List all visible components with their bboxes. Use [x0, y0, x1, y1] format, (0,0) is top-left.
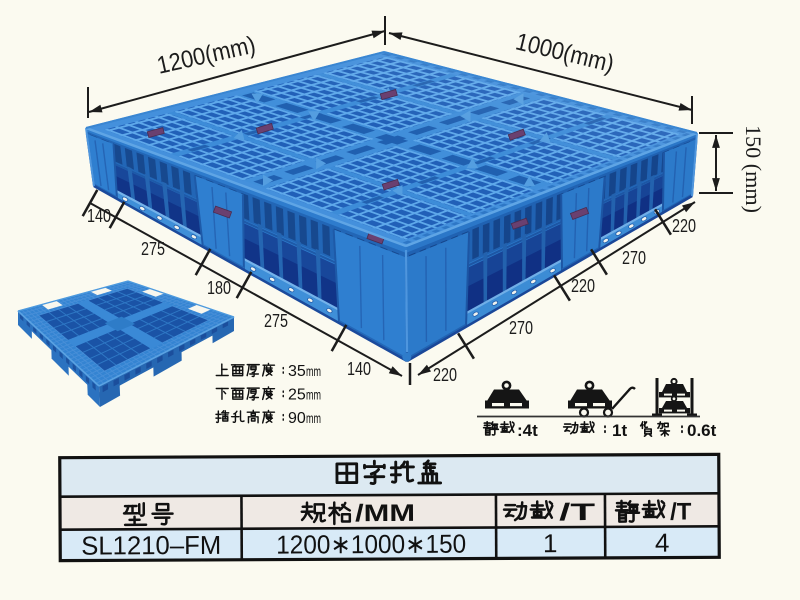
svg-text:220: 220: [433, 365, 457, 385]
svg-text:180: 180: [207, 278, 231, 298]
svg-text:220: 220: [672, 216, 696, 236]
svg-text:mm: mm: [306, 410, 321, 426]
svg-text:270: 270: [622, 248, 646, 268]
svg-text:1: 1: [543, 528, 558, 558]
svg-text::4t: :4t: [517, 421, 538, 440]
svg-text:275: 275: [264, 311, 288, 331]
svg-text:150 (mm): 150 (mm): [741, 125, 766, 213]
svg-text:140: 140: [347, 359, 371, 379]
svg-text:SL1210–FM: SL1210–FM: [81, 530, 221, 561]
svg-text:275: 275: [141, 239, 165, 259]
svg-text:140: 140: [87, 206, 111, 226]
svg-text:270: 270: [509, 318, 533, 338]
svg-text:35: 35: [288, 363, 306, 380]
svg-text:4: 4: [655, 528, 670, 558]
svg-text:220: 220: [571, 276, 595, 296]
svg-text:mm: mm: [306, 387, 321, 403]
svg-text:0.6t: 0.6t: [687, 421, 717, 440]
svg-text:/T: /T: [559, 499, 596, 526]
svg-text:mm: mm: [306, 363, 321, 379]
svg-text:90: 90: [288, 410, 306, 427]
svg-text:1200∗1000∗150: 1200∗1000∗150: [276, 529, 466, 560]
svg-text:/T: /T: [670, 498, 692, 525]
svg-text:/MM: /MM: [355, 500, 415, 527]
svg-text:1t: 1t: [612, 421, 627, 440]
svg-text:25: 25: [288, 387, 306, 404]
